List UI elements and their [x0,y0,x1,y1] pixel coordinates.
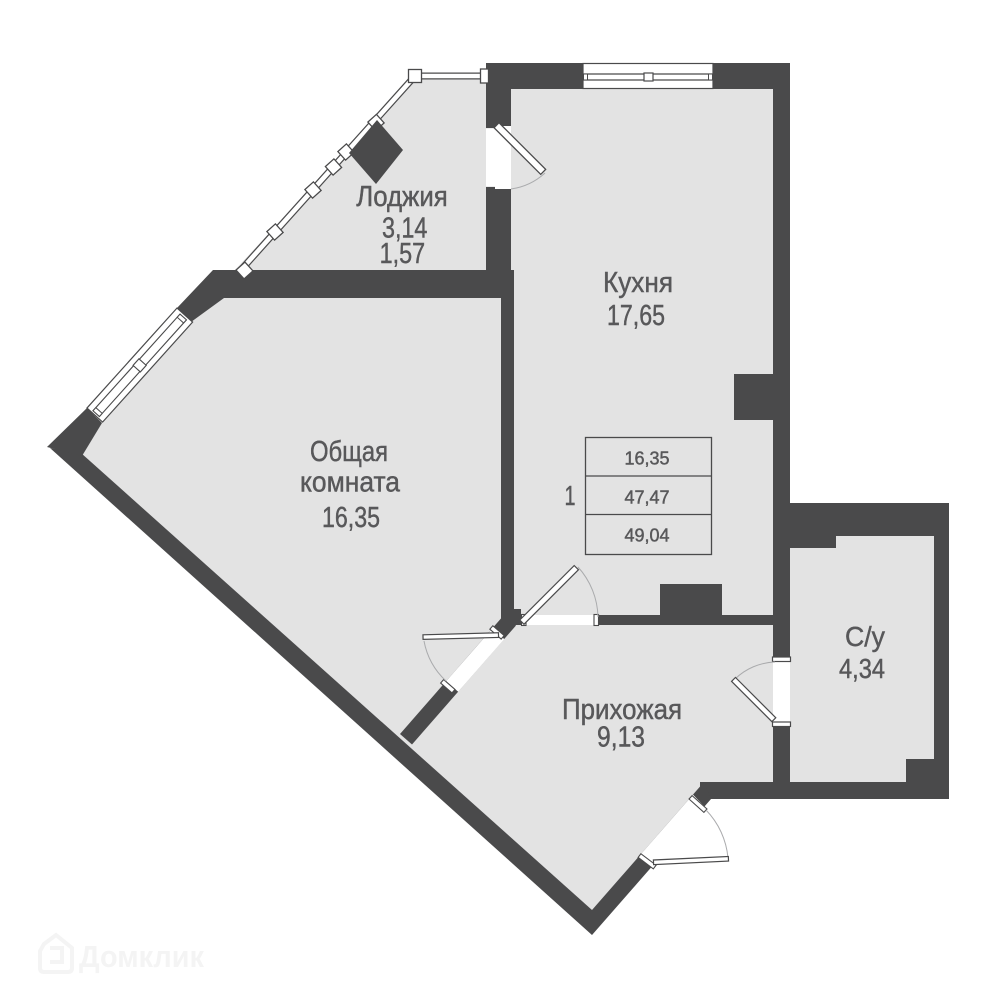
svg-text:комната: комната [300,467,401,499]
svg-text:С/у: С/у [845,621,885,652]
svg-text:16,35: 16,35 [625,449,670,469]
svg-text:1,57: 1,57 [380,238,426,270]
svg-text:Домклик: Домклик [79,939,204,974]
svg-text:16,35: 16,35 [322,502,380,534]
svg-text:4,34: 4,34 [839,653,885,684]
svg-text:1: 1 [565,480,576,511]
svg-text:Общая: Общая [310,436,388,468]
svg-text:17,65: 17,65 [607,300,665,332]
svg-text:Кухня: Кухня [603,267,673,299]
svg-text:49,04: 49,04 [625,526,670,546]
svg-text:47,47: 47,47 [625,488,670,508]
svg-text:Лоджия: Лоджия [356,181,448,213]
svg-text:9,13: 9,13 [597,722,645,754]
